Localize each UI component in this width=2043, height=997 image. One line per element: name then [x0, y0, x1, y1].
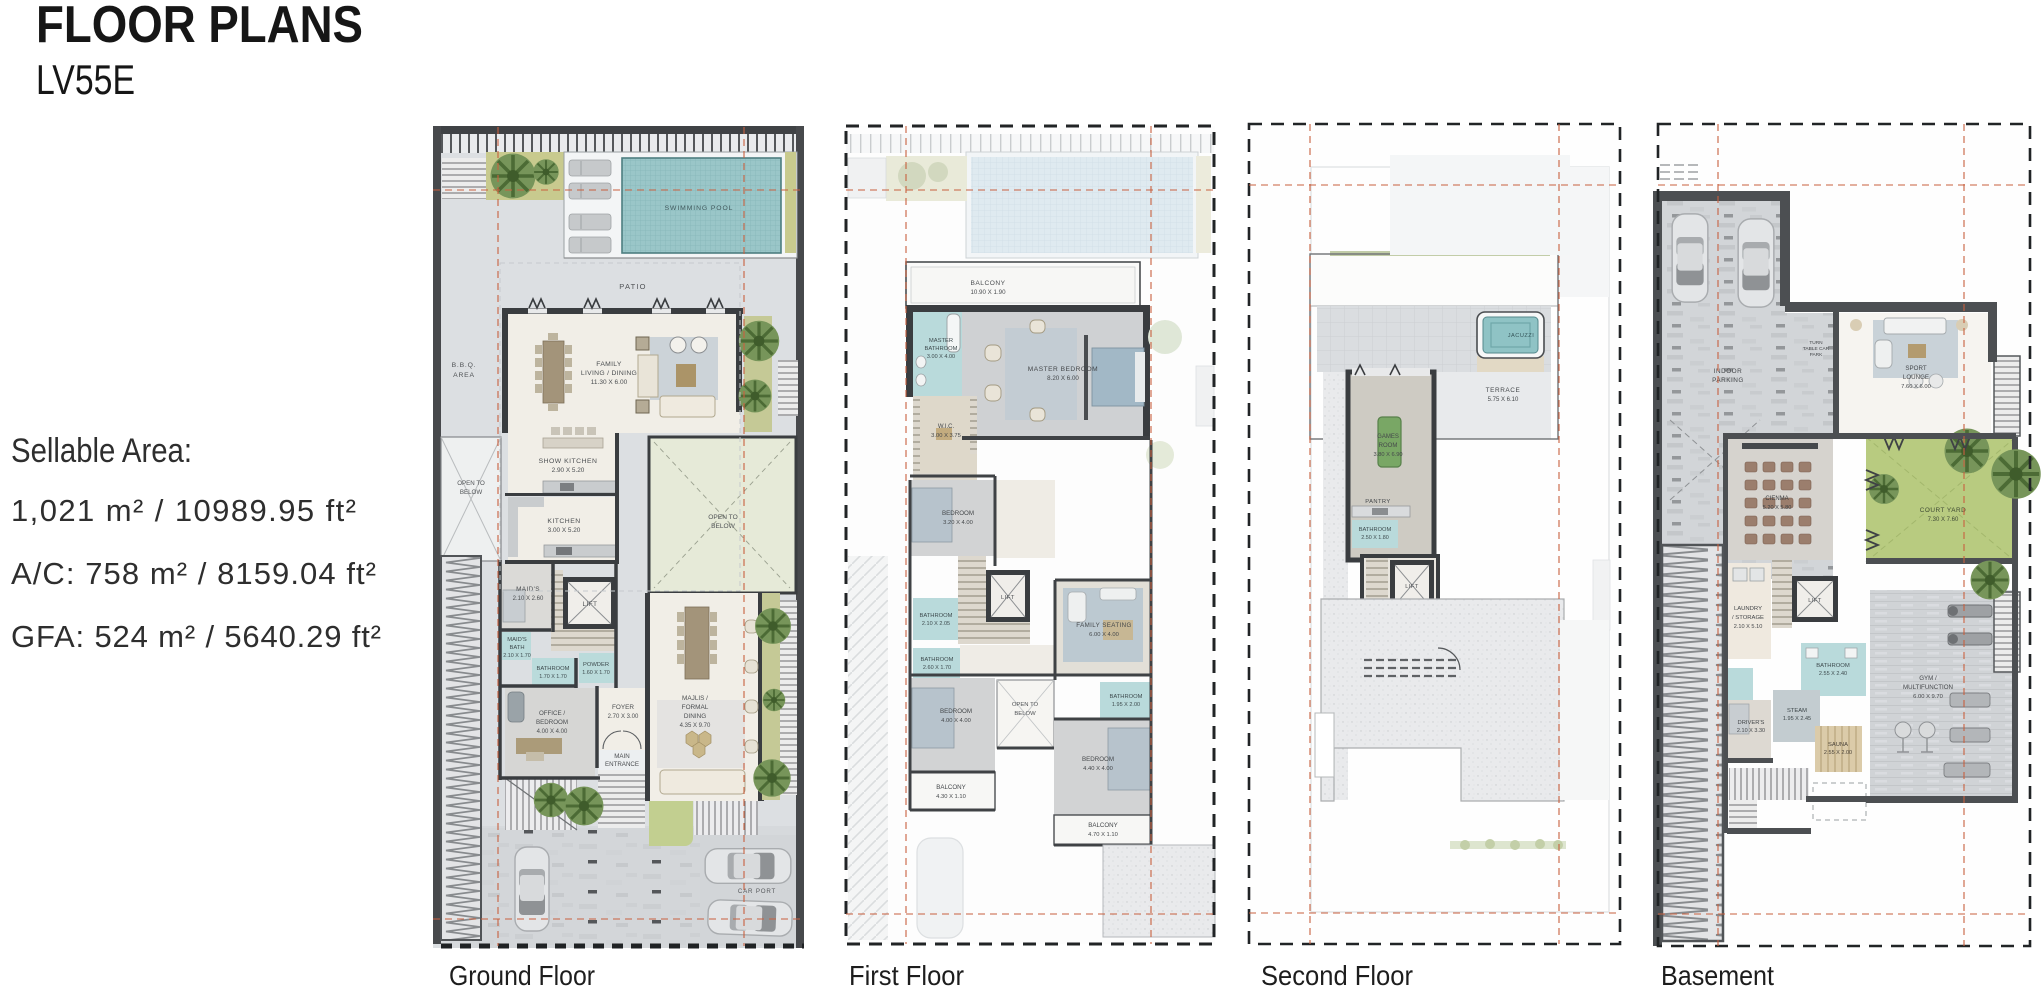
svg-text:SAUNA: SAUNA [1828, 742, 1848, 748]
svg-text:2.90 X 5.20: 2.90 X 5.20 [552, 467, 585, 474]
svg-text:FLOOR PLANS: FLOOR PLANS [36, 0, 363, 54]
svg-text:Second Floor: Second Floor [1261, 960, 1413, 991]
svg-text:LIFT: LIFT [1405, 584, 1419, 590]
svg-text:W.I.C.: W.I.C. [938, 424, 955, 430]
svg-text:2.10 X 2.05: 2.10 X 2.05 [922, 621, 950, 627]
svg-text:BATHROOM: BATHROOM [1109, 694, 1142, 700]
svg-text:OPEN TO: OPEN TO [1012, 702, 1039, 708]
svg-text:4.00 X 4.00: 4.00 X 4.00 [941, 718, 971, 724]
svg-text:PARKING: PARKING [1712, 377, 1744, 384]
svg-text:POWDER: POWDER [583, 662, 609, 668]
svg-text:LIFT: LIFT [1808, 598, 1822, 604]
svg-text:MULTIFUNCTION: MULTIFUNCTION [1903, 684, 1953, 691]
svg-text:CIENMA: CIENMA [1765, 496, 1788, 502]
svg-text:5.75 X 6.10: 5.75 X 6.10 [1488, 397, 1519, 403]
svg-text:LV55E: LV55E [36, 56, 135, 103]
svg-text:2.10 X 5.10: 2.10 X 5.10 [1734, 624, 1763, 630]
svg-text:PARK: PARK [1810, 352, 1824, 358]
svg-text:MAJLIS /: MAJLIS / [682, 695, 708, 702]
svg-text:TURN: TURN [1809, 340, 1823, 346]
svg-text:LIFT: LIFT [1001, 595, 1015, 601]
svg-text:AREA: AREA [453, 372, 475, 379]
svg-text:6.00 X 4.00: 6.00 X 4.00 [1089, 632, 1119, 638]
svg-text:GAMES: GAMES [1377, 434, 1399, 440]
svg-text:4.30 X 1.10: 4.30 X 1.10 [936, 794, 966, 800]
svg-text:GFA: 524 m² / 5640.29 ft²: GFA: 524 m² / 5640.29 ft² [11, 619, 381, 654]
svg-text:Ground Floor: Ground Floor [449, 960, 595, 991]
svg-text:LOUNGE: LOUNGE [1903, 374, 1929, 381]
svg-text:5.20 X 5.80: 5.20 X 5.80 [1763, 505, 1792, 511]
svg-text:1.70 X 1.70: 1.70 X 1.70 [539, 674, 567, 680]
svg-text:3.00 X 5.20: 3.00 X 5.20 [548, 527, 581, 534]
svg-text:2.10 X 2.60: 2.10 X 2.60 [513, 596, 544, 602]
svg-text:B.B.Q.: B.B.Q. [452, 362, 477, 369]
svg-text:3.00 X 3.75: 3.00 X 3.75 [931, 433, 961, 439]
svg-text:8.20 X 6.00: 8.20 X 6.00 [1047, 375, 1079, 382]
svg-text:BELOW: BELOW [711, 523, 736, 530]
svg-text:BATHROOM: BATHROOM [536, 666, 569, 672]
svg-text:3.20 X 4.00: 3.20 X 4.00 [943, 520, 973, 526]
svg-text:PATIO: PATIO [619, 282, 646, 291]
svg-text:FAMILY: FAMILY [596, 361, 622, 368]
svg-text:2.10 X 3.30: 2.10 X 3.30 [1737, 728, 1765, 734]
svg-text:MASTER: MASTER [929, 338, 953, 344]
svg-text:2.10 X 1.70: 2.10 X 1.70 [503, 653, 531, 659]
svg-text:4.70 X 1.10: 4.70 X 1.10 [1088, 832, 1118, 838]
svg-text:LIVING / DINING: LIVING / DINING [581, 370, 637, 377]
svg-text:OFFICE /: OFFICE / [539, 710, 565, 717]
svg-text:10.90 X 1.90: 10.90 X 1.90 [970, 289, 1006, 296]
svg-text:BATHROOM: BATHROOM [924, 346, 957, 352]
svg-text:2.55 X 2.00: 2.55 X 2.00 [1824, 750, 1852, 756]
svg-text:First Floor: First Floor [849, 960, 964, 991]
svg-text:Sellable Area:: Sellable Area: [11, 432, 192, 470]
svg-text:BATHROOM: BATHROOM [920, 657, 953, 663]
svg-text:BATHROOM: BATHROOM [1359, 527, 1392, 533]
svg-text:OPEN TO: OPEN TO [708, 514, 737, 521]
svg-text:PANTRY: PANTRY [1365, 499, 1390, 505]
svg-text:MASTER BEDROOM: MASTER BEDROOM [1028, 366, 1098, 373]
svg-text:DINING: DINING [684, 713, 706, 720]
svg-text:1.95 X 2.45: 1.95 X 2.45 [1783, 716, 1811, 722]
svg-text:/ STORAGE: / STORAGE [1732, 615, 1764, 621]
svg-text:BATHROOM: BATHROOM [1816, 663, 1850, 669]
svg-text:2.55 X 2.40: 2.55 X 2.40 [1819, 671, 1847, 677]
svg-text:BEDROOM: BEDROOM [1082, 756, 1114, 763]
svg-text:FORMAL: FORMAL [682, 704, 709, 711]
svg-text:4.00 X 4.00: 4.00 X 4.00 [537, 729, 568, 735]
svg-text:1.95 X 2.00: 1.95 X 2.00 [1112, 702, 1140, 708]
svg-text:KITCHEN: KITCHEN [547, 518, 580, 525]
svg-text:3.00 X 4.00: 3.00 X 4.00 [927, 354, 955, 360]
svg-text:1.60 X 1.70: 1.60 X 1.70 [582, 670, 610, 676]
svg-text:2.60 X 1.70: 2.60 X 1.70 [923, 665, 951, 671]
svg-text:JACUZZI: JACUZZI [1508, 333, 1535, 339]
svg-text:2.70 X 3.00: 2.70 X 3.00 [608, 714, 639, 720]
svg-text:COURT YARD: COURT YARD [1920, 507, 1966, 514]
svg-text:BEDROOM: BEDROOM [536, 719, 568, 726]
svg-text:BALCONY: BALCONY [1088, 822, 1118, 829]
svg-text:BATHROOM: BATHROOM [919, 613, 952, 619]
svg-text:11.30 X 6.00: 11.30 X 6.00 [591, 379, 628, 386]
svg-text:Basement: Basement [1661, 960, 1774, 991]
svg-text:DRIVER'S: DRIVER'S [1738, 720, 1765, 726]
svg-text:FOYER: FOYER [612, 704, 634, 711]
svg-text:4.35 X 9.70: 4.35 X 9.70 [680, 723, 711, 729]
svg-text:7.60 X 6.00: 7.60 X 6.00 [1901, 384, 1931, 390]
svg-text:3.80 X 6.90: 3.80 X 6.90 [1373, 452, 1402, 458]
svg-text:BALCONY: BALCONY [936, 784, 966, 791]
svg-text:STEAM: STEAM [1787, 708, 1807, 714]
svg-text:A/C: 758 m² / 8159.04 ft²: A/C: 758 m² / 8159.04 ft² [11, 556, 376, 591]
svg-text:GYM /: GYM / [1919, 675, 1937, 682]
svg-text:SWIMMING POOL: SWIMMING POOL [665, 205, 734, 212]
svg-text:ROOM: ROOM [1379, 443, 1398, 449]
svg-text:ENTRANCE: ENTRANCE [605, 761, 639, 768]
svg-text:FAMILY SEATING: FAMILY SEATING [1076, 622, 1131, 629]
svg-text:BEDROOM: BEDROOM [940, 708, 972, 715]
svg-text:BATH: BATH [509, 645, 524, 651]
svg-text:MAIN: MAIN [614, 753, 629, 760]
svg-text:BALCONY: BALCONY [970, 280, 1005, 287]
svg-text:7.30 X 7.60: 7.30 X 7.60 [1928, 517, 1959, 523]
svg-text:SHOW KITCHEN: SHOW KITCHEN [539, 458, 598, 465]
svg-text:1,021 m² / 10989.95 ft²: 1,021 m² / 10989.95 ft² [11, 493, 356, 528]
svg-text:BELOW: BELOW [1014, 711, 1036, 717]
svg-text:4.40 X 4.00: 4.40 X 4.00 [1083, 766, 1113, 772]
svg-text:BELOW: BELOW [460, 489, 483, 496]
svg-text:TABLE CAR: TABLE CAR [1803, 346, 1830, 352]
svg-text:LIFT: LIFT [582, 601, 597, 608]
svg-text:MAID'S: MAID'S [507, 637, 527, 643]
svg-text:MAID'S: MAID'S [516, 586, 540, 593]
svg-text:6.00 X 9.70: 6.00 X 9.70 [1913, 694, 1943, 700]
svg-text:SPORT: SPORT [1905, 365, 1926, 372]
svg-text:OPEN TO: OPEN TO [457, 480, 485, 487]
svg-text:TERRACE: TERRACE [1486, 387, 1521, 394]
svg-text:2.50 X 1.80: 2.50 X 1.80 [1361, 535, 1389, 541]
svg-text:BEDROOM: BEDROOM [942, 510, 974, 517]
svg-text:LAUNDRY: LAUNDRY [1734, 606, 1762, 612]
